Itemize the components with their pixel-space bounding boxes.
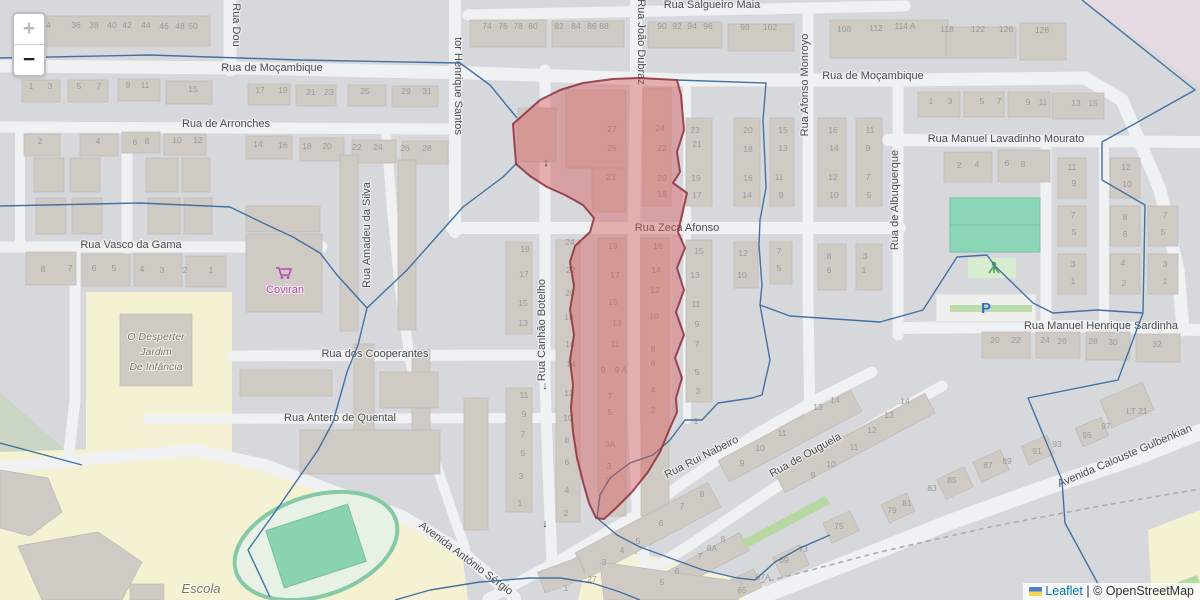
house-number-label: 9 [740, 458, 745, 468]
house-number-label: 3 [519, 471, 524, 481]
house-number-label: 24 [1040, 335, 1050, 345]
house-number-label: 80 [528, 21, 538, 31]
house-number-label: 3 [1071, 259, 1076, 269]
house-number-label: 16 [743, 173, 753, 183]
house-number-label: 8 [700, 489, 705, 499]
house-number-label: 26 [400, 143, 410, 153]
poi-label: Coviran [266, 284, 304, 296]
house-number-label: 25 [360, 86, 370, 96]
house-number-label: 13 [1071, 98, 1081, 108]
street-name-label: Rua Manuel Lavadinho Mourato [928, 133, 1085, 145]
house-number-label: 7 [866, 172, 871, 182]
house-number-label: 5 [695, 367, 700, 377]
house-number-label: 7 [97, 81, 102, 91]
house-number-label: 44 [141, 20, 151, 30]
house-number-label: 10 [1122, 179, 1132, 189]
house-number-label: 9 [1072, 178, 1077, 188]
house-number-label: 7 [698, 551, 703, 561]
house-number-label: 11 [775, 172, 784, 182]
house-number-label: 22 [352, 142, 362, 152]
house-number-label: 9 [811, 470, 816, 480]
house-number-label: 20 [322, 141, 332, 151]
house-number-label: 19 [520, 244, 530, 254]
house-number-label: 15 [694, 246, 704, 256]
house-number-label: 5 [1161, 227, 1166, 237]
house-number-label: 17 [692, 190, 702, 200]
house-number-label: 13 [813, 402, 823, 412]
house-number-label: 1 [929, 96, 934, 106]
house-number-label: 1 [29, 81, 34, 91]
house-number-label: 8 [565, 435, 570, 445]
house-number-label: 11 [866, 125, 875, 135]
street-name-label: Rua Dou [230, 3, 242, 46]
house-number-label: 42 [122, 20, 132, 30]
poi-label: P [981, 300, 991, 317]
street-name-label: Rua João Dubraz [635, 0, 647, 85]
house-number-label: 4 [620, 545, 625, 555]
house-number-label: 5 [867, 190, 872, 200]
house-number-label: 40 [107, 20, 117, 30]
poi-label: O Desperter [127, 331, 185, 343]
street-name-label: Rua Amadeu da Silva [361, 181, 373, 288]
map-canvas[interactable]: 3436384042444648507476788082848688909294… [0, 0, 1200, 600]
house-number-label: 5 [77, 81, 82, 91]
house-number-label: 78 [513, 21, 523, 31]
house-number-label: 1 [694, 416, 699, 426]
house-number-label: 9 [1026, 97, 1031, 107]
oneway-arrow-icon: ↓ [542, 518, 548, 530]
house-number-label: 7 [680, 501, 685, 511]
house-number-label: 93 [1052, 439, 1062, 449]
house-number-label: 126 [999, 24, 1013, 34]
house-number-label: 22 [1011, 335, 1021, 345]
house-number-label: 3 [1163, 259, 1168, 269]
house-number-label: 24 [373, 142, 383, 152]
house-number-label: 13 [778, 143, 788, 153]
house-number-label: 6 [565, 457, 570, 467]
ukraine-flag-icon [1029, 587, 1042, 596]
house-number-label: 118 [940, 24, 954, 34]
house-number-label: 75 [834, 521, 844, 531]
house-number-label: 128 [1035, 25, 1049, 35]
street-name-label: Rua Canhão Botelho [536, 279, 548, 381]
zoom-control: + − [12, 12, 46, 77]
house-number-label: 74 [482, 21, 492, 31]
house-number-label: 38 [89, 20, 99, 30]
house-number-label: 82 [554, 21, 564, 31]
house-number-label: 11 [1068, 162, 1077, 172]
leaflet-link[interactable]: Leaflet [1045, 584, 1083, 598]
house-number-label: 46 [159, 21, 169, 31]
house-number-label: 16 [828, 125, 838, 135]
poi-label: Escola [181, 581, 220, 596]
house-number-label: 95 [1082, 430, 1092, 440]
house-number-label: 10 [755, 443, 765, 453]
house-number-label: 7 [695, 339, 700, 349]
house-number-label: 76 [498, 21, 508, 31]
street-name-label: Rua Afonso Monroyo [799, 34, 811, 137]
house-number-label: 86 [587, 21, 597, 31]
house-number-label: 7 [997, 96, 1002, 106]
zoom-in-button[interactable]: + [14, 14, 44, 45]
house-number-label: 5 [660, 577, 665, 587]
poi-label: De Infância [129, 361, 182, 373]
house-number-label: 4 [140, 264, 145, 274]
house-number-label: 1 [1163, 276, 1168, 286]
house-number-label: 15 [518, 298, 528, 308]
house-number-label: 13 [690, 270, 700, 280]
house-number-label: 7 [1163, 210, 1168, 220]
street-name-label: Rua de Arronches [182, 118, 271, 130]
attribution-separator: | [1083, 584, 1093, 598]
house-number-label: 10 [829, 190, 839, 200]
house-number-label: 96 [703, 21, 713, 31]
house-number-label: 4 [96, 136, 101, 146]
street-name-label: Rua de Albuquerque [889, 150, 901, 250]
house-number-label: 6 [659, 518, 664, 528]
house-number-label: 12 [193, 135, 203, 145]
house-number-label: 6 [1005, 158, 1010, 168]
house-number-label: 12 [738, 248, 748, 258]
house-number-label: 7 [1071, 210, 1076, 220]
house-number-label: 14 [253, 139, 263, 149]
house-number-label: 65 [737, 585, 747, 595]
house-number-label: 8 [721, 534, 726, 544]
house-number-label: 30 [1108, 337, 1118, 347]
house-number-label: 1 [518, 498, 523, 508]
house-number-label: 85 [947, 475, 957, 485]
house-number-label: 31 [422, 86, 432, 96]
house-number-label: 2 [957, 160, 962, 170]
house-number-label: 19 [691, 173, 701, 183]
house-number-label: 8A [707, 543, 718, 553]
house-number-label: 2 [183, 265, 188, 275]
house-number-label: 12 [867, 425, 877, 435]
house-number-label: 14 [830, 395, 840, 405]
house-number-label: 7 [68, 263, 73, 273]
house-number-label: 1 [1071, 276, 1076, 286]
house-number-label: 14 [742, 190, 752, 200]
house-number-label: 23 [690, 125, 700, 135]
house-number-label: 3 [48, 81, 53, 91]
house-number-label: 4 [1121, 258, 1126, 268]
house-number-label: 8 [827, 251, 832, 261]
house-number-label: 112 [869, 23, 883, 33]
house-number-label: 6 [827, 265, 832, 275]
house-number-label: LT 21 [1127, 406, 1148, 416]
house-number-label: 12 [1121, 162, 1131, 172]
house-number-label: 17 [255, 85, 265, 95]
house-number-label: 89 [1002, 456, 1012, 466]
house-number-label: 36 [71, 20, 81, 30]
house-number-label: 10 [826, 459, 836, 469]
house-number-label: 4 [975, 159, 980, 169]
house-number-label: 11 [1039, 97, 1048, 107]
house-number-label: 87 [983, 460, 993, 470]
house-number-label: 19 [278, 85, 288, 95]
house-number-label: 2 [564, 508, 569, 518]
house-number-label: 20 [743, 125, 753, 135]
house-number-label: 14 [829, 143, 839, 153]
house-number-label: 94 [687, 21, 697, 31]
house-number-label: 5 [777, 263, 782, 273]
house-number-label: 32 [1152, 339, 1162, 349]
house-number-label: 48 [175, 21, 185, 31]
house-number-label: 3 [948, 96, 953, 106]
house-number-label: 2 [38, 136, 43, 146]
house-number-label: 1 [564, 583, 569, 593]
house-number-label: 24 [565, 237, 575, 247]
house-number-label: 11 [850, 442, 859, 452]
house-number-label: 79 [887, 505, 897, 515]
house-number-label: 122 [971, 24, 985, 34]
oneway-arrow-icon: ↓ [542, 380, 548, 392]
house-number-label: 91 [1032, 446, 1042, 456]
house-number-label: 5 [521, 448, 526, 458]
street-name-label: Avenida Calouste Gulbenkian [1056, 422, 1194, 490]
house-number-label: 50 [188, 21, 198, 31]
house-number-label: 6 [92, 263, 97, 273]
street-name-label: Rua dos Cooperantes [321, 348, 429, 360]
house-number-label: 3 [602, 557, 607, 567]
house-number-label: 6 [1123, 229, 1128, 239]
house-number-label: 92 [672, 21, 682, 31]
street-name-label: Rua Antero de Quental [284, 412, 396, 424]
street-name-label: Rua Salgueiro Maia [664, 0, 761, 11]
house-number-label: 1 [862, 265, 867, 275]
supermarket-building [246, 234, 322, 312]
house-number-label: 10 [737, 270, 747, 280]
house-number-label: 9 [695, 319, 700, 329]
street-name-label: Rua Vasco da Gama [80, 239, 182, 251]
house-number-label: 15 [1088, 98, 1098, 108]
house-number-label: 17 [519, 269, 529, 279]
street-name-label: Rua de Moçambique [221, 62, 323, 74]
house-number-label: 81 [902, 498, 912, 508]
house-number-label: 114 A [894, 21, 915, 31]
house-number-label: 2 [1122, 278, 1127, 288]
house-number-label: 97 [1101, 421, 1111, 431]
house-number-label: 5 [1072, 227, 1077, 237]
house-number-label: 28 [1088, 336, 1098, 346]
house-number-label: 11 [520, 390, 529, 400]
house-number-label: 3 [160, 265, 165, 275]
house-number-label: 14 [900, 396, 910, 406]
house-number-label: 23 [324, 87, 334, 97]
house-number-label: 108 [837, 24, 851, 34]
house-number-label: 9 [126, 80, 131, 90]
house-number-label: 84 [571, 21, 581, 31]
poi-label: Jardim [139, 346, 172, 358]
house-number-label: 6 [133, 137, 138, 147]
house-number-label: 10 [172, 135, 182, 145]
house-number-label: 3 [863, 251, 868, 261]
house-number-label: 21 [306, 87, 316, 97]
house-number-label: 29 [401, 86, 411, 96]
street-name-label: tor Henrique Santos [452, 37, 464, 135]
house-number-label: 11 [141, 80, 150, 90]
house-number-label: 5 [112, 263, 117, 273]
house-number-label: 28 [422, 143, 432, 153]
house-number-label: 11 [778, 428, 787, 438]
house-number-label: 102 [763, 22, 777, 32]
house-number-label: 8 [1123, 212, 1128, 222]
house-number-label: 88 [599, 21, 609, 31]
house-number-label: 13 [518, 318, 528, 328]
house-number-label: 9 [779, 190, 784, 200]
house-number-label: 8 [145, 136, 150, 146]
house-number-label: 9 [522, 409, 527, 419]
house-number-label: 16 [278, 140, 288, 150]
house-number-label: 18 [743, 144, 753, 154]
street-name-label: Rua Manuel Henrique Sardinha [1024, 320, 1179, 332]
house-number-label: 5 [980, 96, 985, 106]
house-number-label: 8 [1021, 159, 1026, 169]
house-number-label: 21 [692, 139, 702, 149]
oneway-arrow-icon: ↓ [543, 157, 549, 169]
house-number-label: 6 [675, 566, 680, 576]
street-name-label: Rua de Moçambique [822, 70, 924, 82]
house-number-label: 15 [778, 125, 788, 135]
house-number-label: 18 [302, 141, 312, 151]
house-number-label: 9 [866, 143, 871, 153]
house-number-label: 90 [657, 21, 667, 31]
house-number-label: 4 [565, 485, 570, 495]
house-number-label: 83 [927, 483, 937, 493]
house-number-label: 11 [692, 299, 701, 309]
zoom-out-button[interactable]: − [14, 45, 44, 75]
house-number-label: 20 [990, 335, 1000, 345]
house-number-label: 15 [188, 84, 198, 94]
house-number-label: 7 [521, 429, 526, 439]
house-number-label: 98 [740, 22, 750, 32]
house-number-label: 7 [777, 246, 782, 256]
osm-link[interactable]: © OpenStreetMap [1093, 584, 1194, 598]
house-number-label: 26 [1057, 336, 1067, 346]
house-number-label: 13 [884, 410, 894, 420]
house-number-label: 8 [41, 264, 46, 274]
house-number-label: 1 [209, 265, 214, 275]
house-number-label: 12 [828, 172, 838, 182]
attribution-bar: Leaflet | © OpenStreetMap [1023, 583, 1200, 600]
house-number-label: 3 [696, 386, 701, 396]
